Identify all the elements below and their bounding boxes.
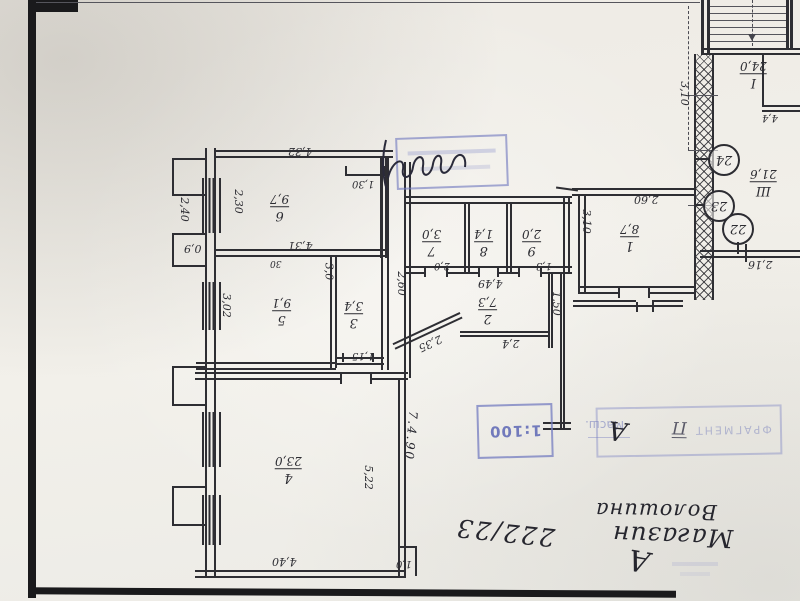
room-3-label: 3 3,4 — [344, 300, 363, 329]
wall — [195, 570, 406, 578]
dim-room6-door: 1,30 — [352, 178, 374, 188]
dim-room1-height: 3,10 — [581, 209, 592, 234]
door-tick — [648, 288, 650, 298]
window — [202, 412, 221, 467]
dim-room6-left: 2,30 — [233, 189, 244, 214]
faint-stamp-residue — [680, 572, 710, 576]
wall — [540, 272, 572, 274]
handwriting-scribble — [378, 132, 478, 194]
dim-room7-door: 2,0 — [434, 260, 450, 270]
fragment-stamp-box: А П ФРАГМЕНТ — [596, 404, 783, 457]
wall — [563, 196, 570, 272]
room-8-label: 8 1,4 — [474, 228, 493, 257]
scale-value: 1:100 — [488, 421, 541, 440]
stair-step — [710, 13, 786, 14]
dim-room3-door: 1,15 — [352, 350, 374, 360]
wall — [196, 362, 336, 370]
room-6-label: 6 9,7 — [270, 193, 289, 222]
stair-step — [710, 41, 786, 42]
wall — [195, 378, 340, 380]
dim-room2-door: 2,4 — [502, 338, 520, 349]
fragment-letter-handwritten: А — [606, 416, 629, 444]
wall — [762, 105, 800, 107]
wall — [701, 53, 800, 55]
wall — [652, 300, 683, 302]
room-4-label: 4 23,0 — [275, 455, 302, 484]
wall — [398, 378, 406, 578]
dim-hall-width: 2,16 — [748, 259, 773, 270]
scanned-floor-plan-sheet: 2,40 0,9 4,32 1,30 2,30 4,31 30 6 9,7 3,… — [0, 0, 800, 601]
wall — [464, 202, 470, 272]
wall — [446, 272, 478, 274]
entry-hall-label: Ш 21,6 — [750, 168, 777, 197]
scan-bottom-edge — [28, 587, 676, 597]
door-tick — [370, 374, 372, 384]
wall — [700, 250, 800, 252]
party-wall — [694, 54, 714, 300]
wall — [400, 546, 415, 548]
stair-step — [710, 27, 786, 28]
stair-direction-arrow — [748, 34, 756, 41]
wall — [195, 372, 408, 374]
stair-step — [710, 20, 786, 21]
dim-outer-left: 2,40 — [179, 197, 190, 222]
door-tick — [636, 302, 638, 312]
wall — [786, 0, 793, 48]
room-5-label: 5 9,1 — [272, 297, 291, 326]
scale-box: 1:100 — [476, 403, 553, 459]
dim-exit: 1,50 — [551, 291, 562, 316]
fragment-stamp-text: ФРАГМЕНТ — [694, 423, 772, 437]
door-tick — [518, 268, 520, 277]
dim-room6-top: 4,32 — [288, 146, 313, 157]
dim-room6-bottom: 4,31 — [288, 240, 313, 251]
dim-room4-height: 5,22 — [363, 465, 374, 490]
room-2-label: 2 7,3 — [478, 296, 497, 325]
dim-room3-top: 3,0 — [323, 263, 334, 281]
dim-room2-width: 4,49 — [478, 278, 503, 289]
window — [202, 282, 221, 330]
door-tick — [497, 268, 499, 277]
faint-stamp-residue — [672, 562, 718, 566]
wall-tick — [688, 95, 718, 96]
dim-notch: 1,0 — [396, 558, 412, 568]
dim-stairs-small: 4,4 — [762, 112, 778, 122]
dim-wall-thk: 30 — [270, 258, 281, 267]
wall — [404, 162, 411, 378]
room-9-label: 9 2,0 — [522, 228, 541, 257]
room-1-label: 1 8,7 — [620, 223, 639, 252]
dim-outer-left-small: 0,9 — [184, 243, 202, 254]
wall — [404, 272, 424, 274]
door-tick — [340, 374, 342, 384]
scan-top-edge — [36, 2, 700, 3]
dim-room1-width: 2,60 — [634, 194, 659, 205]
handwritten-date: 7.4.90 — [403, 410, 419, 461]
door-tick — [618, 288, 620, 298]
wall — [506, 202, 512, 272]
wall — [578, 292, 618, 294]
door-tick — [652, 302, 654, 312]
wall — [404, 196, 572, 204]
wall — [497, 272, 518, 274]
stair-step — [710, 6, 786, 7]
room-7-label: 7 3,0 — [422, 228, 441, 257]
wall-pilaster — [172, 158, 207, 196]
door-tick — [478, 268, 480, 277]
wall — [701, 0, 710, 54]
dim-room9-door: 1,3 — [536, 260, 552, 270]
wall — [573, 305, 683, 307]
handwritten-number: 222/23 — [454, 515, 556, 550]
wall — [648, 292, 696, 294]
axis-circle-24: 24 — [708, 144, 740, 176]
dim-corridor: 2,60 — [396, 271, 407, 296]
dim-room4-width: 4,40 — [272, 556, 297, 567]
handwritten-line2: Волошина — [595, 499, 717, 522]
dim-stairs: 3,10 — [679, 81, 690, 106]
wall — [415, 546, 417, 576]
door-tick — [424, 268, 426, 277]
stair-hall-label: I 24,0 — [740, 60, 767, 89]
scan-left-edge — [28, 0, 36, 598]
dim-room5-left: 3,02 — [221, 293, 232, 318]
wall-pilaster — [172, 486, 207, 526]
wall — [701, 48, 800, 50]
wall — [578, 286, 696, 288]
axis-circle-22: 22 — [722, 213, 754, 245]
section-line — [688, 6, 689, 150]
fragment-mark: П — [672, 418, 687, 435]
leader-line — [737, 242, 739, 254]
door-tick — [342, 353, 344, 362]
handwritten-letter: А — [626, 544, 653, 576]
wall — [573, 300, 636, 302]
